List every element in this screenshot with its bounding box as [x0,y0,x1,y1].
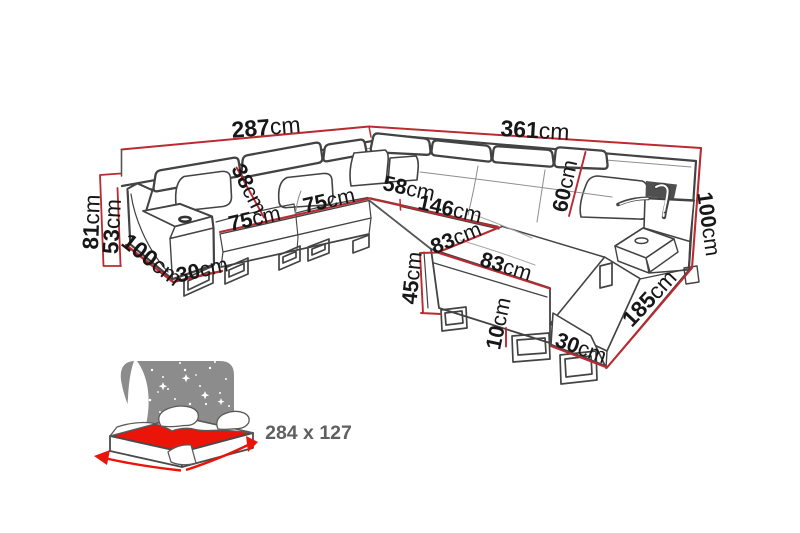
svg-text:284 x 127: 284 x 127 [265,422,352,444]
svg-text:361cm: 361cm [500,115,570,145]
